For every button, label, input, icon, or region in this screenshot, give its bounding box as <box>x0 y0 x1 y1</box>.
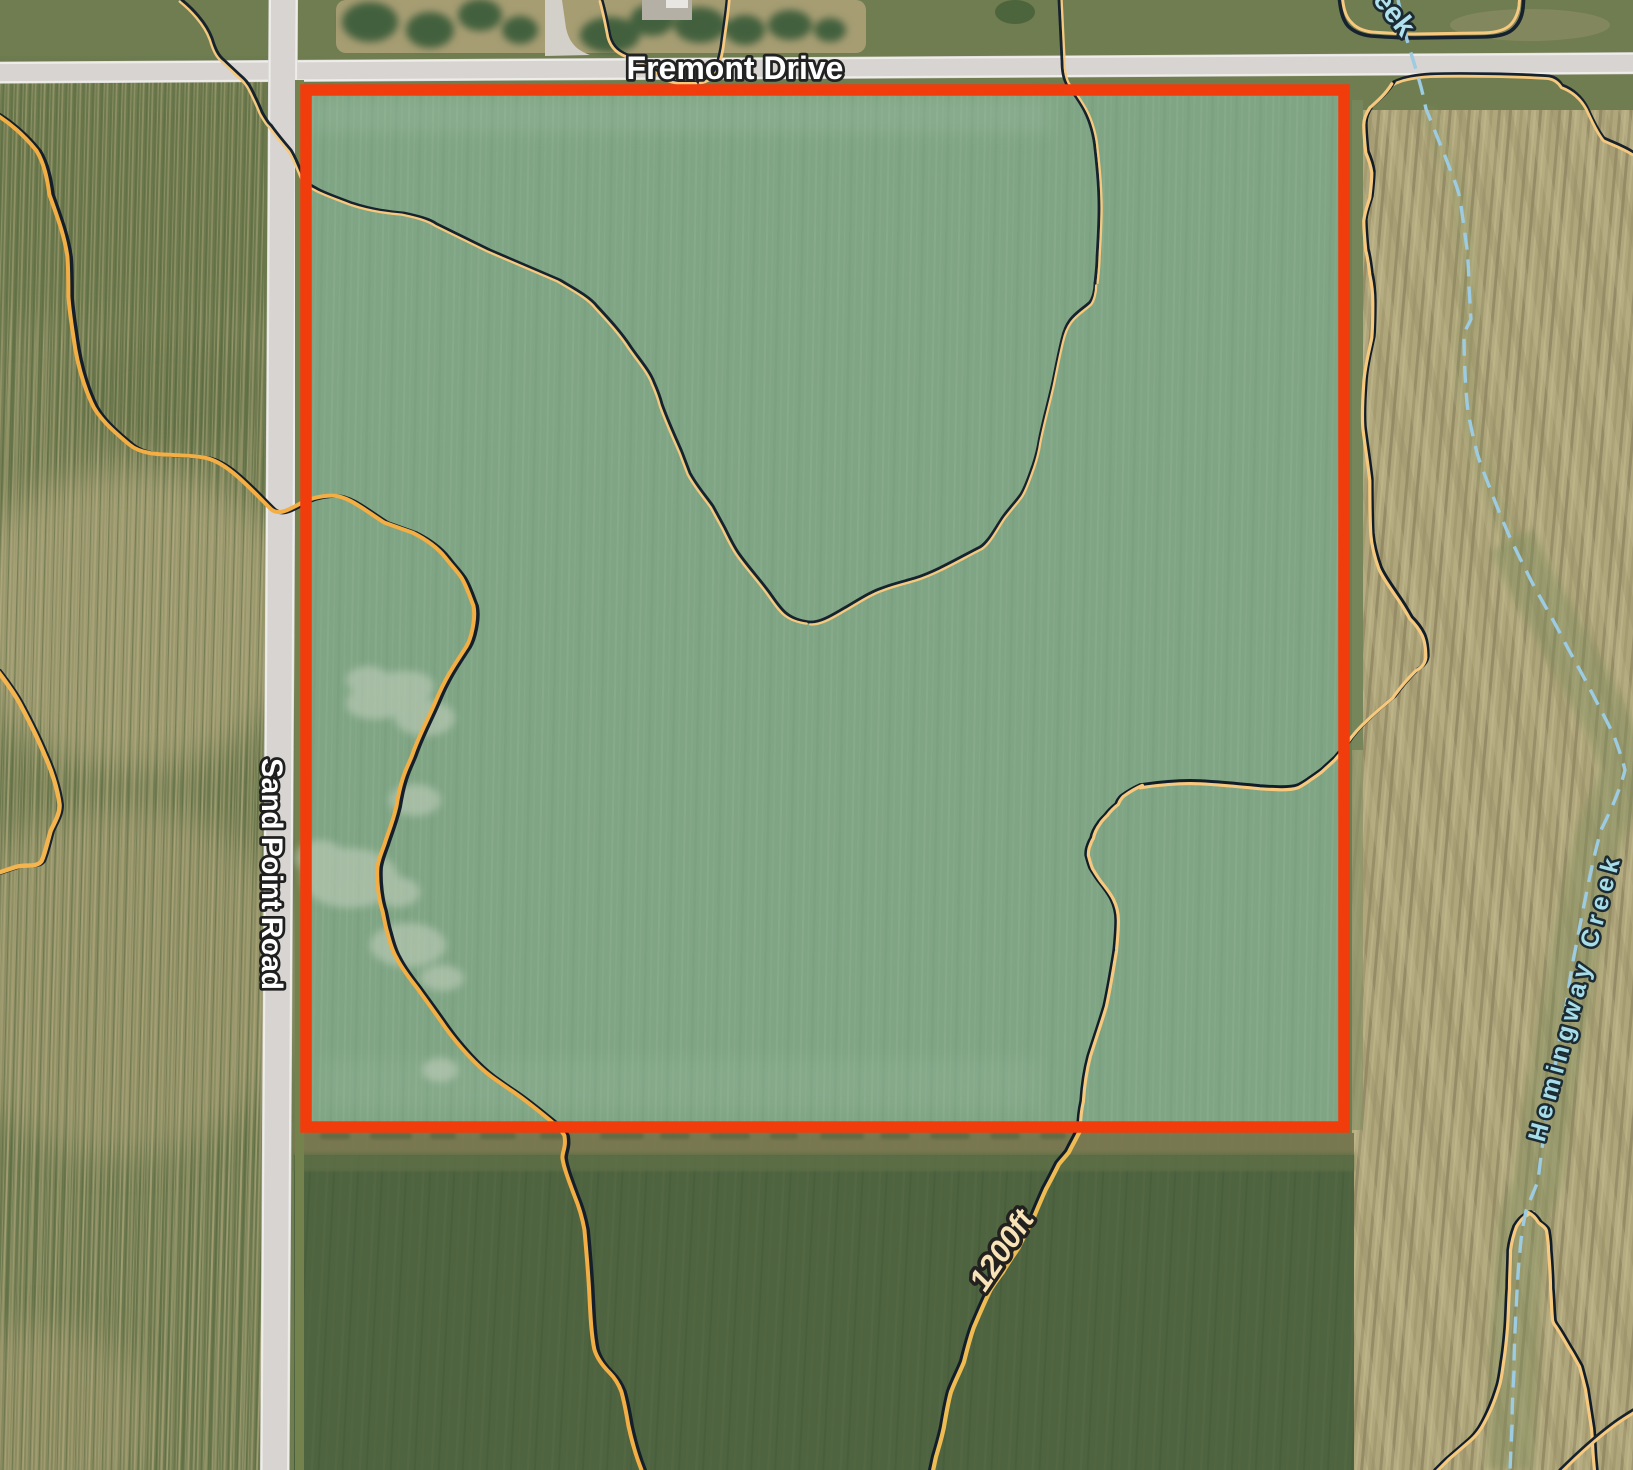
svg-text:Fremont Drive: Fremont Drive <box>627 50 844 86</box>
svg-text:Sand Point Road: Sand Point Road <box>255 758 288 990</box>
